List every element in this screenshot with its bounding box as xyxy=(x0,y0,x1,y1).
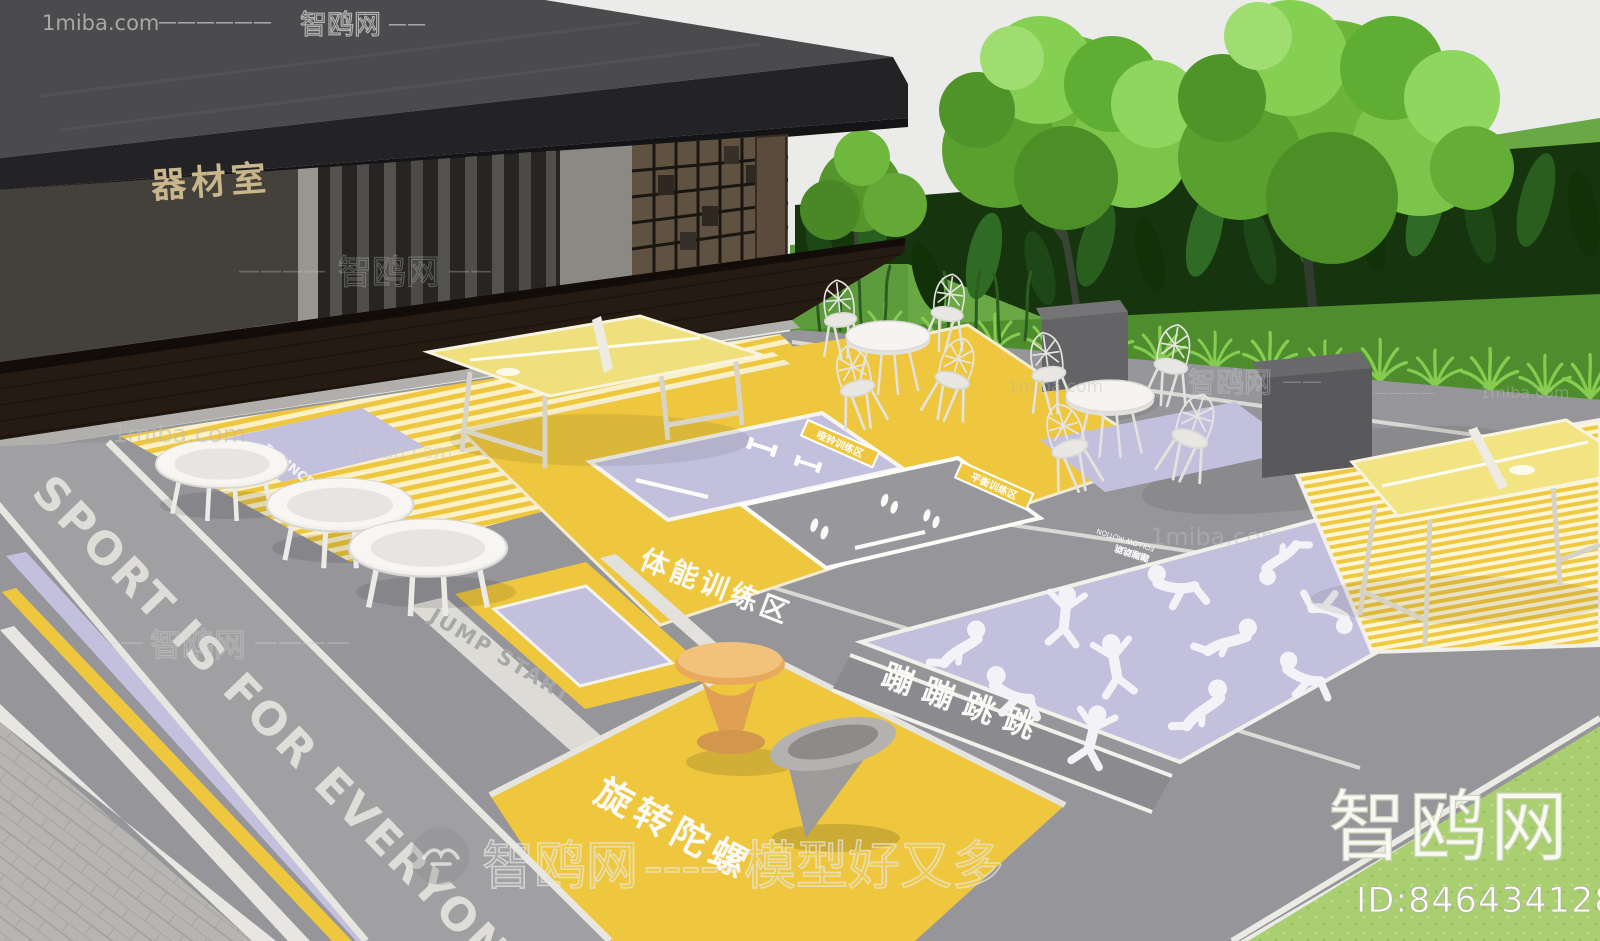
render-3d-sports-plaza: 器材室 xyxy=(0,0,1600,941)
wm-name: 智鸥网 xyxy=(338,253,440,293)
wm-url: 1miba.com xyxy=(1480,383,1569,402)
wm-name: 智鸥网 xyxy=(1188,366,1272,399)
scene-canvas: 器材室 xyxy=(0,0,1600,941)
wood-column xyxy=(756,135,786,259)
equipment-room-sign: 器材室 xyxy=(150,158,273,207)
wm-name: 智鸥网 xyxy=(150,626,246,664)
watermark-dashes: —————— xyxy=(158,11,272,33)
wm-dash: —— xyxy=(1282,369,1322,393)
watermark-url-5: 1miba.com xyxy=(1150,523,1284,551)
wm-dash: ———— xyxy=(254,628,350,656)
watermark-bottom-right: 智鸥网 ID:846434128 xyxy=(1328,783,1600,921)
concrete-panel xyxy=(560,146,632,287)
watermark-bottom-row: 智鸥网-----模型好又多 xyxy=(411,827,1004,897)
wm-dash: —— xyxy=(448,259,492,284)
watermark-url-2: 1miba.com xyxy=(112,420,246,448)
watermark-url: 1miba.com xyxy=(42,11,159,35)
watermark-dashes-2: —— xyxy=(388,13,426,35)
wm-dash: ———— xyxy=(238,259,326,284)
watermark-url-3: 1miba.com xyxy=(346,441,452,463)
wall-divider-panel xyxy=(298,168,318,322)
watermark-tagline: 智鸥网-----模型好又多 xyxy=(482,837,1004,897)
watermark-sitename-large: 智鸥网 xyxy=(1328,783,1571,873)
watermark-url-4: 1miba.com xyxy=(1008,377,1103,397)
wm-dash: —— xyxy=(96,628,144,656)
wm-dash: ———— xyxy=(1372,383,1436,402)
model-id: ID:846434128 xyxy=(1356,881,1600,921)
watermark-sitename: 智鸥网 xyxy=(300,10,381,41)
